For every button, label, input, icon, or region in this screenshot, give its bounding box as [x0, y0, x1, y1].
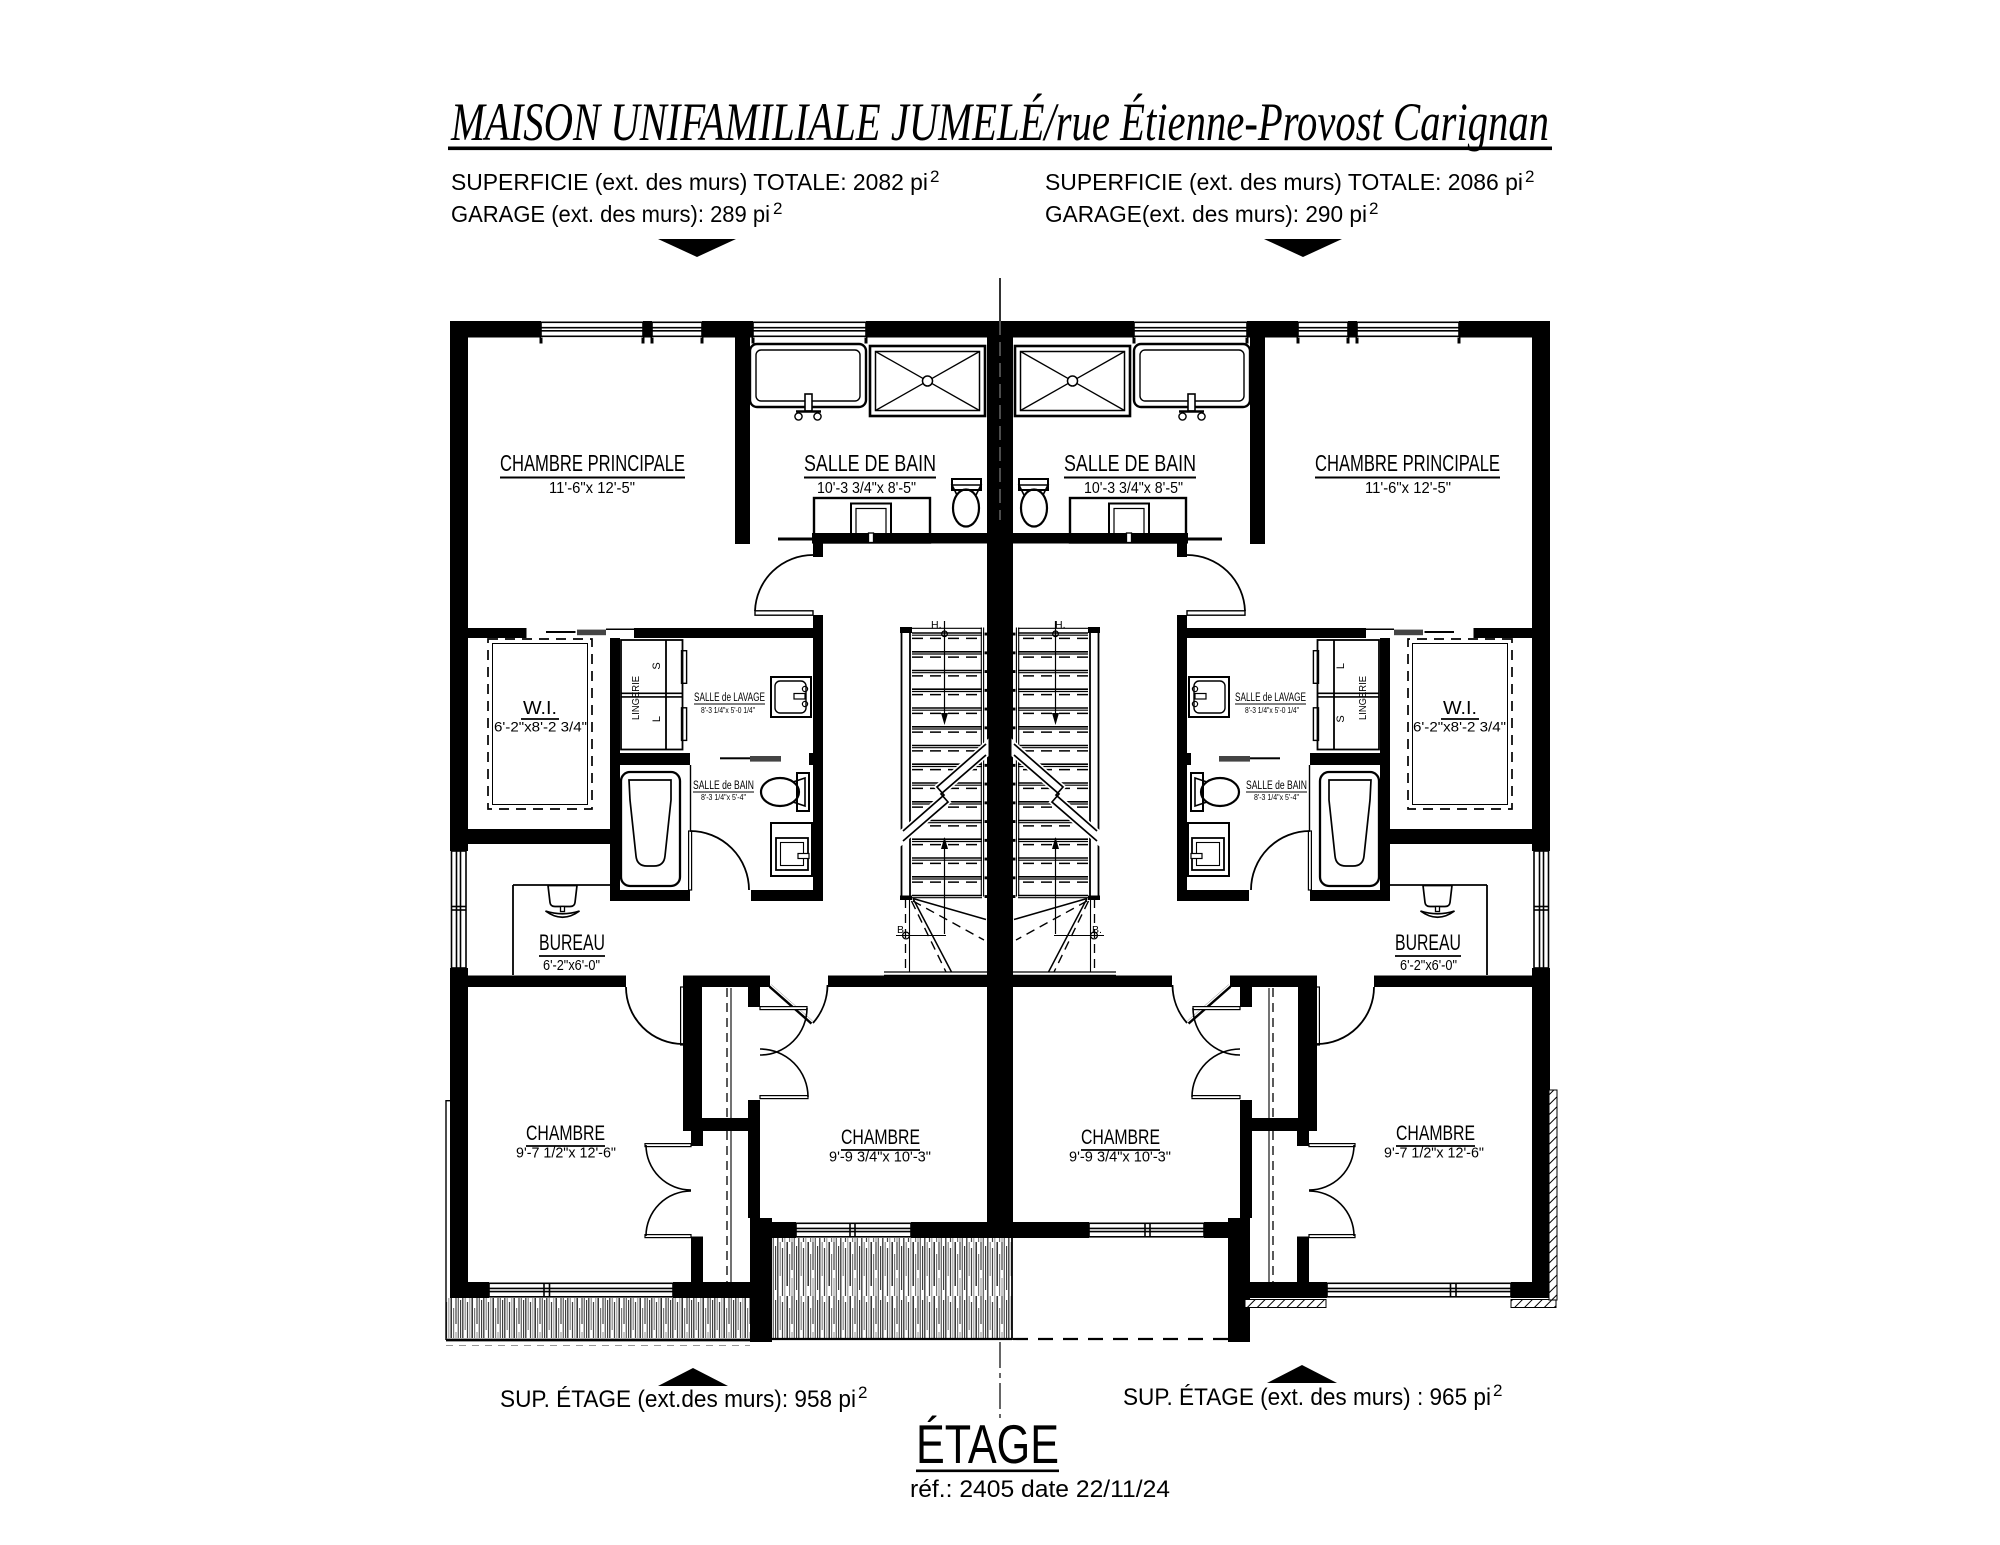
svg-text:6'-2"x8'-2 3/4": 6'-2"x8'-2 3/4" [1413, 719, 1506, 735]
svg-text:SUPERFICIE (ext. des murs) TO: SUPERFICIE (ext. des murs) TOTALE: 2082 … [451, 169, 928, 195]
svg-text:SALLE de LAVAGE: SALLE de LAVAGE [694, 692, 765, 704]
svg-text:2: 2 [858, 1383, 867, 1402]
svg-text:MAISON UNIFAMILIALE JUMELÉ/ru: MAISON UNIFAMILIALE JUMELÉ/rue Étienne-P… [450, 92, 1549, 152]
svg-text:11'-6"x 12'-5": 11'-6"x 12'-5" [1365, 480, 1451, 497]
svg-text:SALLE DE BAIN: SALLE DE BAIN [804, 450, 936, 476]
svg-text:2: 2 [1525, 167, 1534, 186]
svg-text:CHAMBRE PRINCIPALE: CHAMBRE PRINCIPALE [500, 450, 685, 476]
svg-text:CHAMBRE: CHAMBRE [1396, 1122, 1475, 1145]
svg-text:BUREAU: BUREAU [1395, 930, 1461, 955]
svg-text:LINGERIE: LINGERIE [1357, 676, 1369, 720]
svg-text:9'-7 1/2"x 12'-6": 9'-7 1/2"x 12'-6" [516, 1146, 616, 1162]
svg-text:2: 2 [930, 167, 939, 186]
svg-text:2: 2 [1369, 199, 1378, 218]
svg-text:6'-2"x6'-0": 6'-2"x6'-0" [543, 958, 600, 974]
svg-text:SALLE de BAIN: SALLE de BAIN [1246, 780, 1307, 792]
svg-text:L: L [1335, 663, 1347, 669]
svg-text:H.: H. [931, 619, 942, 631]
svg-text:S: S [651, 662, 663, 669]
svg-text:SALLE DE BAIN: SALLE DE BAIN [1064, 450, 1196, 476]
svg-text:6'-2"x8'-2 3/4": 6'-2"x8'-2 3/4" [494, 719, 587, 735]
svg-text:9'-7 1/2"x 12'-6": 9'-7 1/2"x 12'-6" [1384, 1146, 1484, 1162]
svg-text:W.I.: W.I. [523, 698, 557, 718]
svg-text:SUP. ÉTAGE (ext. des murs) :: SUP. ÉTAGE (ext. des murs) : 965 pi [1123, 1384, 1491, 1411]
svg-text:GARAGE(ext. des murs): 290 pi: GARAGE(ext. des murs): 290 pi [1045, 201, 1367, 227]
svg-text:ÉTAGE: ÉTAGE [916, 1413, 1059, 1475]
svg-text:SUPERFICIE (ext. des murs) TOT: SUPERFICIE (ext. des murs) TOTALE: 2086 … [1045, 169, 1523, 195]
svg-text:W.I.: W.I. [1443, 698, 1477, 718]
svg-text:2: 2 [1493, 1381, 1502, 1400]
svg-text:S: S [1335, 715, 1347, 722]
svg-text:8'-3 1/4"x 5'-4": 8'-3 1/4"x 5'-4" [1254, 792, 1299, 802]
svg-text:réf.: 2405 date 22/11/24: réf.: 2405 date 22/11/24 [910, 1476, 1170, 1503]
svg-text:B.: B. [897, 924, 907, 936]
svg-text:2: 2 [773, 199, 782, 218]
svg-text:8'-3 1/4"x 5'-0 1/4": 8'-3 1/4"x 5'-0 1/4" [1245, 705, 1299, 715]
svg-text:10'-3 3/4"x 8'-5": 10'-3 3/4"x 8'-5" [1084, 480, 1183, 497]
svg-text:8'-3 1/4"x 5'-4": 8'-3 1/4"x 5'-4" [701, 792, 746, 802]
svg-text:LINGERIE: LINGERIE [630, 676, 642, 720]
svg-text:L: L [651, 716, 663, 722]
svg-text:9'-9 3/4"x 10'-3": 9'-9 3/4"x 10'-3" [829, 1150, 931, 1166]
svg-text:SALLE de BAIN: SALLE de BAIN [693, 780, 754, 792]
svg-text:CHAMBRE: CHAMBRE [1081, 1126, 1160, 1149]
svg-text:GARAGE (ext. des murs): 289 pi: GARAGE (ext. des murs): 289 pi [451, 201, 770, 227]
svg-text:SALLE de LAVAGE: SALLE de LAVAGE [1235, 692, 1306, 704]
svg-text:H.: H. [1055, 619, 1066, 631]
svg-text:BUREAU: BUREAU [539, 930, 605, 955]
svg-text:B.: B. [1092, 924, 1102, 936]
svg-text:CHAMBRE: CHAMBRE [526, 1122, 605, 1145]
svg-text:9'-9 3/4"x 10'-3": 9'-9 3/4"x 10'-3" [1069, 1150, 1171, 1166]
svg-text:CHAMBRE PRINCIPALE: CHAMBRE PRINCIPALE [1315, 450, 1500, 476]
svg-text:CHAMBRE: CHAMBRE [841, 1126, 920, 1149]
svg-text:SUP. ÉTAGE (ext.des murs): 95: SUP. ÉTAGE (ext.des murs): 958 pi [500, 1386, 856, 1413]
svg-text:8'-3 1/4"x 5'-0 1/4": 8'-3 1/4"x 5'-0 1/4" [701, 705, 755, 715]
svg-text:10'-3 3/4"x 8'-5": 10'-3 3/4"x 8'-5" [817, 480, 916, 497]
svg-text:11'-6"x 12'-5": 11'-6"x 12'-5" [549, 480, 635, 497]
svg-text:6'-2"x6'-0": 6'-2"x6'-0" [1400, 958, 1457, 974]
